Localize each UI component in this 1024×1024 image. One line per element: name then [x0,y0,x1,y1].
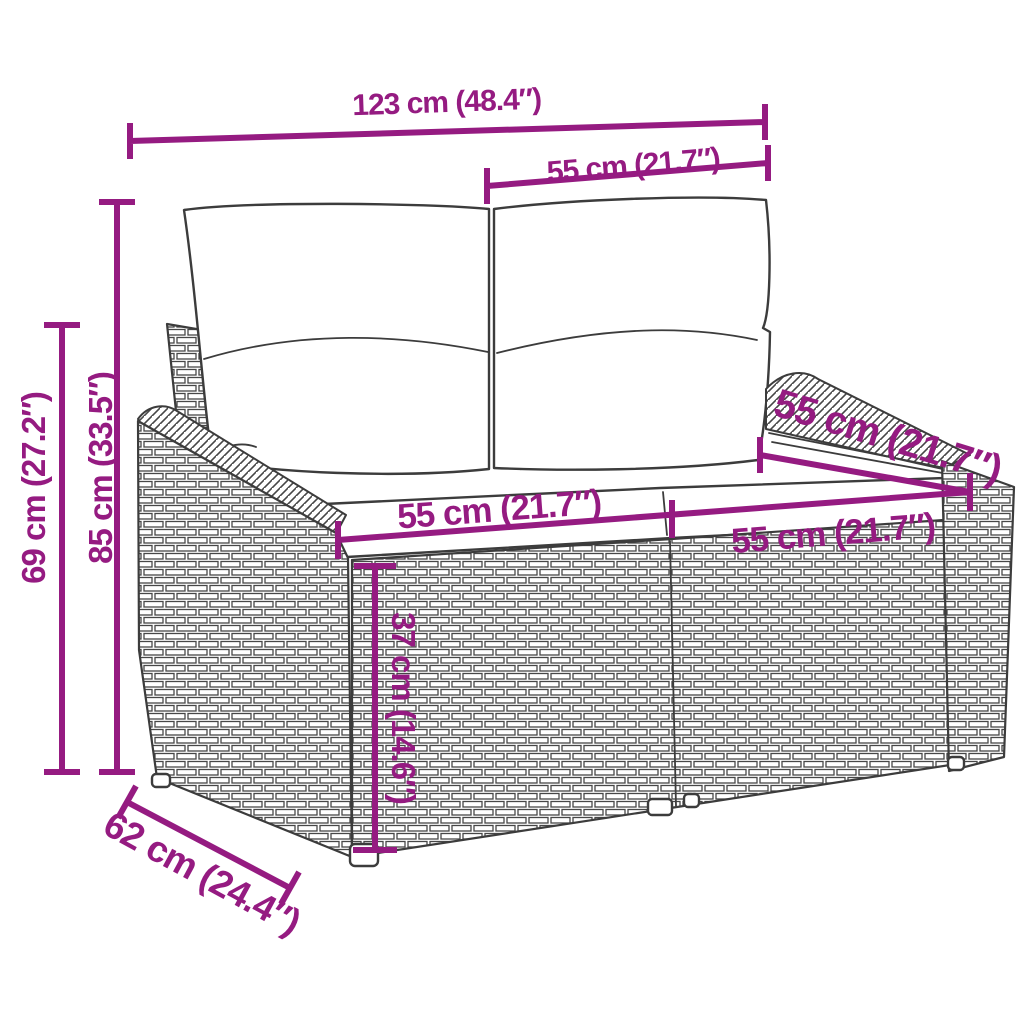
diagram-canvas: 123 cm (48.4″) 55 cm (21.7″) 85 cm (33.5… [0,0,1024,1024]
foot-right [948,757,964,770]
foot-left-arm [152,774,170,787]
label-seat-height: 37 cm (14.6″) [385,612,422,804]
dimension-backrest-width: 55 cm (21.7″) [487,142,768,204]
foot-center-left [648,799,672,815]
dimension-armrest-height: 69 cm (27.2″) [15,325,80,772]
dimension-total-height: 85 cm (33.5″) [82,202,135,772]
label-total-width: 123 cm (48.4″) [352,83,542,123]
right-armrest-side [942,461,1014,771]
left-armrest-front [138,421,352,857]
front-panel [352,519,1002,857]
label-backrest-width: 55 cm (21.7″) [546,142,721,189]
dimension-diagram: 123 cm (48.4″) 55 cm (21.7″) 85 cm (33.5… [0,0,1024,1024]
label-armrest-height: 69 cm (27.2″) [15,392,52,584]
foot-center-right [684,794,699,807]
back-cushion-right [494,198,770,470]
back-cushion-left [184,204,489,474]
label-total-height: 85 cm (33.5″) [82,372,119,564]
